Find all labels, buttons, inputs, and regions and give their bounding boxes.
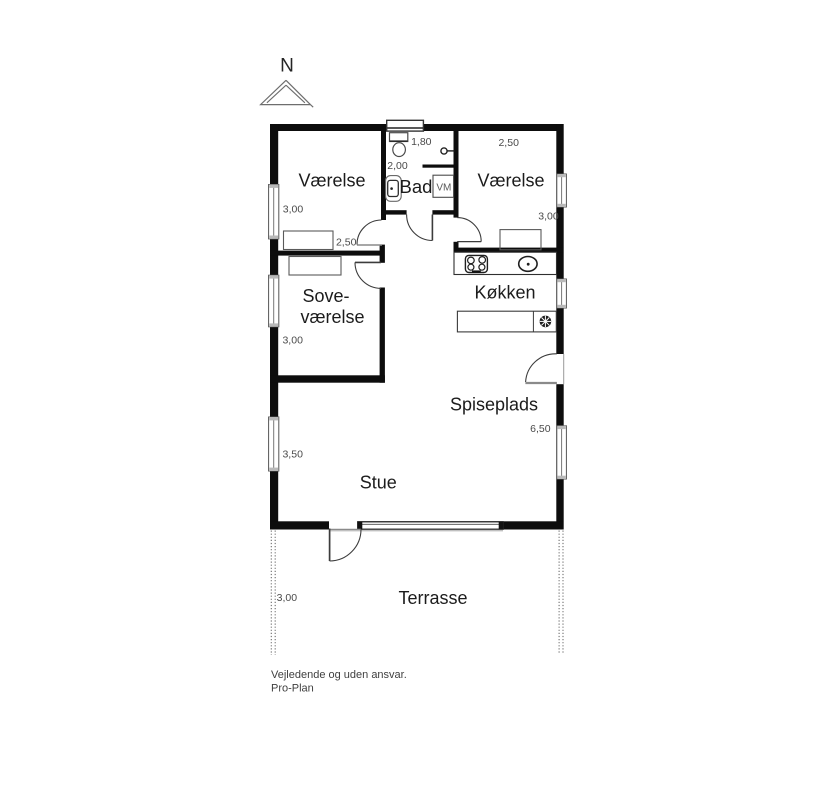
svg-text:2,50: 2,50 — [336, 236, 357, 248]
svg-text:N: N — [280, 56, 294, 77]
svg-text:Spiseplads: Spiseplads — [450, 395, 538, 415]
svg-text:Værelse: Værelse — [477, 171, 544, 191]
svg-text:1,80: 1,80 — [411, 136, 432, 148]
svg-text:Sove-: Sove- — [302, 286, 349, 306]
svg-text:Vejledende og uden ansvar.: Vejledende og uden ansvar. — [271, 669, 407, 681]
svg-text:Værelse: Værelse — [298, 171, 365, 191]
svg-text:Terrasse: Terrasse — [398, 588, 467, 608]
svg-text:Bad: Bad — [400, 176, 433, 197]
svg-text:3,00: 3,00 — [282, 334, 303, 346]
svg-text:3,00: 3,00 — [277, 592, 298, 604]
svg-text:værelse: værelse — [300, 307, 364, 327]
svg-text:Køkken: Køkken — [474, 283, 535, 303]
svg-text:Stue: Stue — [360, 473, 397, 493]
svg-text:3,50: 3,50 — [282, 448, 303, 460]
svg-text:2,00: 2,00 — [387, 160, 408, 172]
svg-text:6,50: 6,50 — [530, 423, 551, 435]
svg-text:VM: VM — [436, 182, 451, 193]
svg-text:2,50: 2,50 — [498, 137, 519, 149]
svg-text:3,00: 3,00 — [538, 211, 559, 223]
svg-text:Pro-Plan: Pro-Plan — [271, 682, 314, 694]
svg-text:3,00: 3,00 — [283, 204, 304, 216]
